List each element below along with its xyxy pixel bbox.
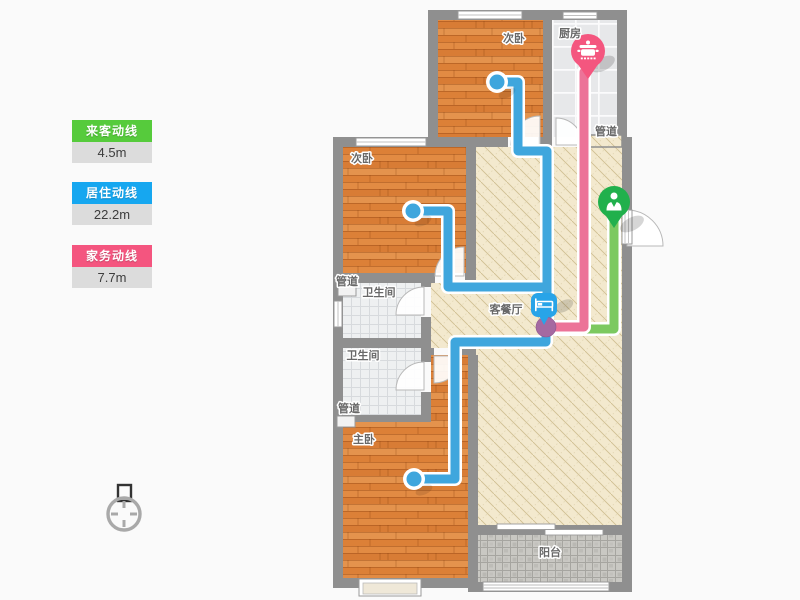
window-bedroom-top [458, 11, 522, 19]
legend-item-visitor[interactable]: 来客动线 4.5m [72, 120, 152, 163]
label-kitchen: 厨房 [559, 26, 581, 40]
legend-resident-label: 居住动线 [72, 182, 152, 204]
window-bathroom-1 [334, 301, 342, 327]
floorplan-page: 次卧 厨房 管道 次卧 管道 卫生间 客餐厅 卫生间 管道 主卧 阳台 来客动线… [0, 0, 800, 600]
label-balcony: 阳台 [539, 545, 561, 559]
legend-visitor-value: 4.5m [72, 142, 152, 163]
legend-resident-value: 22.2m [72, 204, 152, 225]
floor-plan: 次卧 厨房 管道 次卧 管道 卫生间 客餐厅 卫生间 管道 主卧 阳台 [0, 0, 800, 600]
label-duct-upper: 管道 [336, 274, 358, 288]
label-duct-lower: 管道 [338, 401, 360, 415]
legend-item-housework[interactable]: 家务动线 7.7m [72, 245, 152, 288]
compass [108, 485, 140, 530]
label-master-bedroom: 主卧 [353, 432, 375, 446]
label-duct-kitchen: 管道 [595, 124, 617, 138]
label-bedroom-top: 次卧 [503, 31, 525, 45]
window-kitchen [563, 12, 597, 19]
label-bedroom-mid: 次卧 [351, 151, 373, 165]
legend-housework-label: 家务动线 [72, 245, 152, 267]
legend-item-resident[interactable]: 居住动线 22.2m [72, 182, 152, 225]
window-bedroom-mid [356, 138, 426, 146]
label-bathroom-2: 卫生间 [347, 348, 380, 362]
legend-visitor-label: 来客动线 [72, 120, 152, 142]
window-balcony [483, 582, 609, 591]
label-living-room: 客餐厅 [489, 302, 523, 316]
duct-shaft-lower [337, 416, 355, 427]
bay-window-master [359, 579, 421, 596]
label-bathroom-1: 卫生间 [363, 285, 396, 299]
legend-housework-value: 7.7m [72, 267, 152, 288]
